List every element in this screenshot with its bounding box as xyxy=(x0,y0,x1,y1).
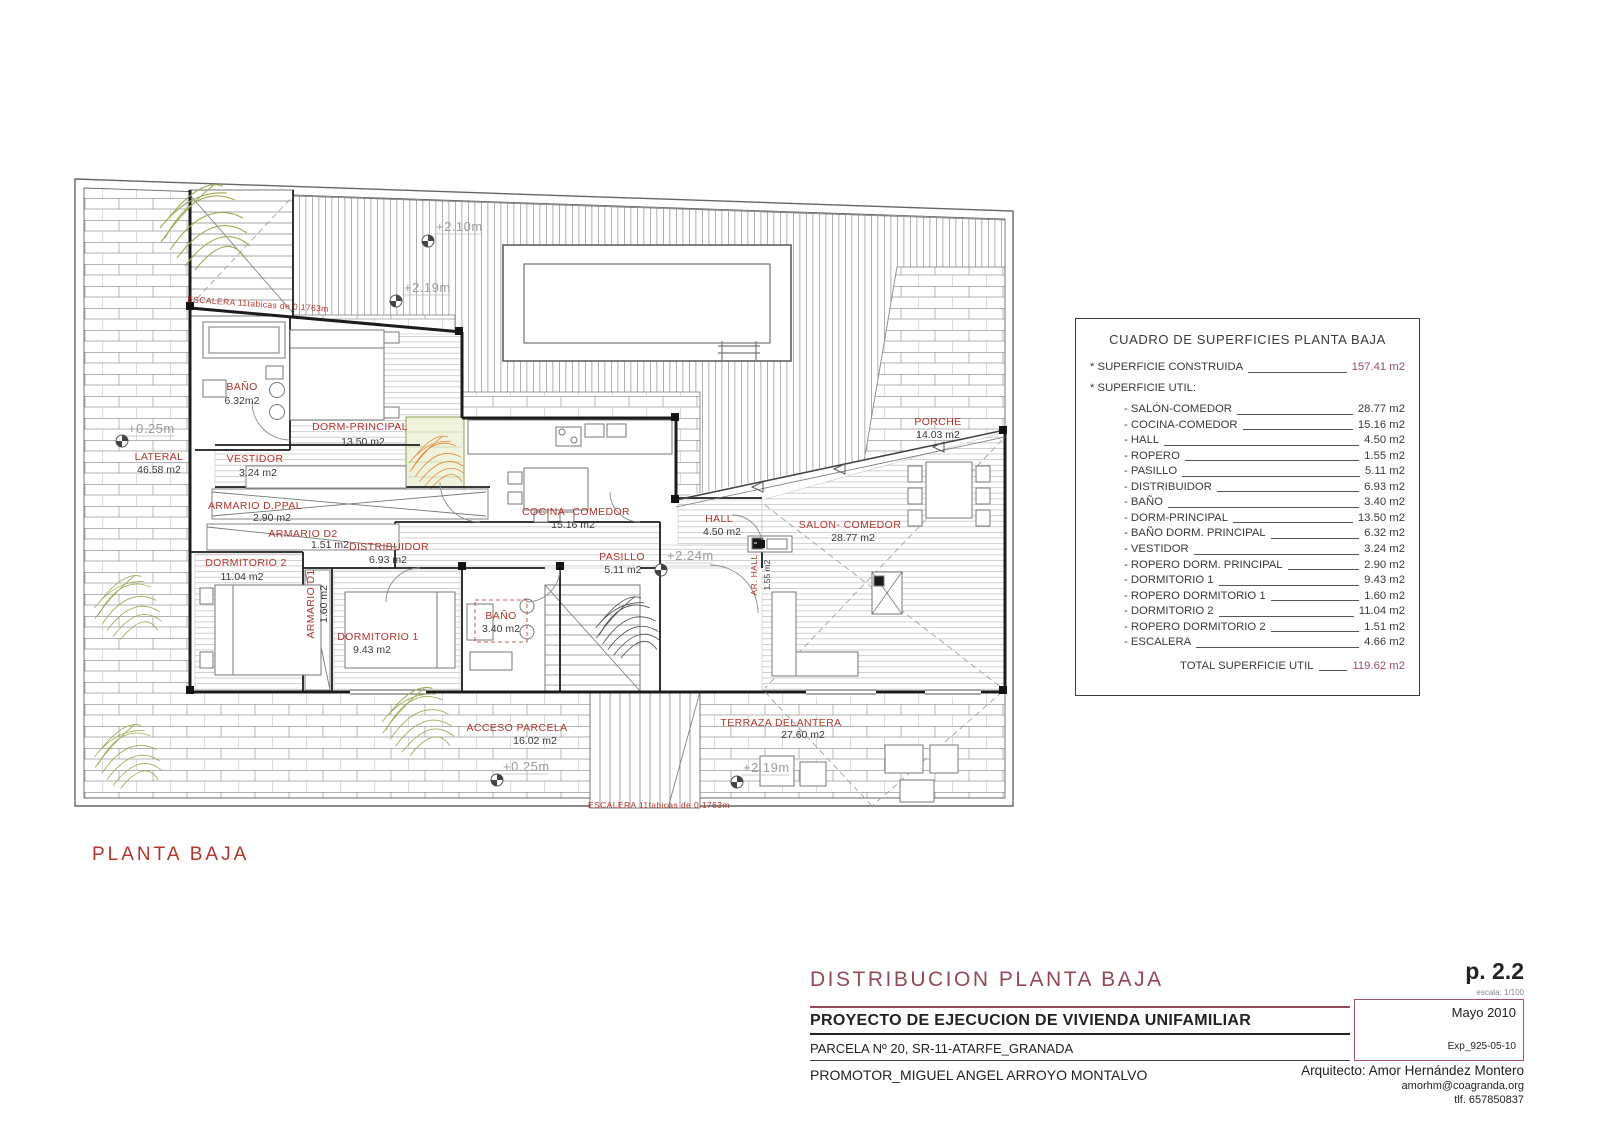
pool xyxy=(503,245,791,361)
row-label: * SUPERFICIE CONSTRUIDA xyxy=(1090,360,1243,376)
stairs-bottom xyxy=(590,692,700,808)
level-label: +2.10m xyxy=(436,219,483,234)
parcel-line: PARCELA Nº 20, SR-11-ATARFE_GRANADA xyxy=(810,1041,1073,1056)
room-area-acceso: 16.02 m2 xyxy=(513,735,557,747)
surface-table-title: CUADRO DE SUPERFICIES PLANTA BAJA xyxy=(1090,332,1405,347)
row-value: 11.04 m2 xyxy=(1359,604,1405,620)
row-label: TOTAL SUPERFICIE UTIL xyxy=(1180,659,1314,675)
row-label: - DISTRIBUIDOR xyxy=(1124,480,1212,496)
row-label: - HALL xyxy=(1124,433,1159,449)
table-row: - ROPERO1.55 m2 xyxy=(1090,449,1405,465)
scale-note: escala: 1/100 xyxy=(1360,988,1524,997)
level-label: +0.25m xyxy=(503,759,550,774)
row-value: 28.77 m2 xyxy=(1358,402,1405,418)
room-label-salon: SALON- COMEDOR xyxy=(799,519,901,531)
room-label-armario-d1: ARMARIO D1 xyxy=(305,569,317,638)
table-row: - DORMITORIO 19.43 m2 xyxy=(1090,573,1405,589)
row-value: 1.55 m2 xyxy=(1364,449,1405,465)
row-value: 6.93 m2 xyxy=(1364,480,1405,496)
row-label: - ROPERO DORMITORIO 2 xyxy=(1124,620,1266,636)
room-area-vestidor: 3.24 m2 xyxy=(239,467,277,479)
room-area-dormitorio-1: 9.43 m2 xyxy=(353,644,391,656)
leader-line xyxy=(1182,475,1360,477)
room-label-ar-hall: AR. HALL xyxy=(749,555,759,596)
plan-caption: PLANTA BAJA xyxy=(92,844,249,865)
table-row: - ROPERO DORMITORIO 11.60 m2 xyxy=(1090,589,1405,605)
room-label-distribuidor: DISTRIBUIDOR xyxy=(349,541,429,553)
table-row: - PASILLO5.11 m2 xyxy=(1090,464,1405,480)
leader-line xyxy=(1288,568,1360,570)
room-area-porche: 14.03 m2 xyxy=(916,429,960,441)
table-row: - BAÑO3.40 m2 xyxy=(1090,495,1405,511)
row-label: * SUPERFICIE UTIL: xyxy=(1090,381,1196,397)
row-value: 119.62 m2 xyxy=(1352,659,1405,675)
leader-line xyxy=(1233,521,1353,523)
date-label: Mayo 2010 xyxy=(1360,1005,1516,1020)
row-label: - ROPERO xyxy=(1124,449,1180,465)
row-value: 5.11 m2 xyxy=(1365,464,1405,480)
row-value: 1.51 m2 xyxy=(1364,620,1405,636)
row-label: - ROPERO DORM. PRINCIPAL xyxy=(1124,558,1283,574)
level-symbol-icon xyxy=(390,295,402,307)
leader-line xyxy=(1243,428,1353,430)
room-area-armario-dppal: 2.90 m2 xyxy=(253,512,291,524)
table-row: - COCINA-COMEDOR15.16 m2 xyxy=(1090,418,1405,434)
row-value: 13.50 m2 xyxy=(1358,511,1405,527)
room-area-ar-hall: 1.55 m2 xyxy=(762,559,772,590)
room-label-dormitorio-2: DORMITORIO 2 xyxy=(205,557,287,569)
leader-line xyxy=(1271,537,1360,539)
room-label-dorm-principal: DORM-PRINCIPAL xyxy=(312,421,408,433)
room-area-hall: 4.50 m2 xyxy=(703,526,741,538)
room-label-porche: PORCHE xyxy=(914,416,961,428)
room-area-terraza: 27.60 m2 xyxy=(781,729,825,741)
level-symbol-icon xyxy=(731,776,743,788)
leader-line xyxy=(1248,371,1346,373)
room-area-cocina: 15.16 m2 xyxy=(551,519,595,531)
level-label: +2.24m xyxy=(667,548,714,563)
row-value: 9.43 m2 xyxy=(1364,573,1405,589)
table-row-construida: * SUPERFICIE CONSTRUIDA 157.41 m2 xyxy=(1090,360,1405,376)
leader-line xyxy=(1271,599,1360,601)
room-area-dorm-principal: 13.50 m2 xyxy=(341,436,385,448)
room-area-distribuidor: 6.93 m2 xyxy=(369,554,407,566)
room-label-lateral: LATERAL xyxy=(135,451,184,463)
leader-line xyxy=(1164,444,1359,446)
parcel-rule xyxy=(810,1060,1350,1061)
leader-line xyxy=(1271,630,1360,632)
level-symbol-icon xyxy=(116,435,128,447)
page-number: p. 2.2 xyxy=(1360,958,1524,985)
level-label: +2.19m xyxy=(404,280,451,295)
room-label-bano-ppal: BAÑO xyxy=(226,380,257,393)
room-label-hall: HALL xyxy=(705,513,733,525)
stairs-note-bottom: ESCALERA 11tabicas de 0.1763m xyxy=(588,800,730,810)
row-value: 157.41 m2 xyxy=(1352,360,1405,376)
table-row: - SALÓN-COMEDOR28.77 m2 xyxy=(1090,402,1405,418)
surface-table: CUADRO DE SUPERFICIES PLANTA BAJA * SUPE… xyxy=(1075,318,1420,696)
table-row: - DORM-PRINCIPAL13.50 m2 xyxy=(1090,511,1405,527)
project-rule xyxy=(810,1033,1350,1035)
row-label: - ESCALERA xyxy=(1124,635,1191,651)
table-row: - BAÑO DORM. PRINCIPAL6.32 m2 xyxy=(1090,526,1405,542)
row-label: - ROPERO DORMITORIO 1 xyxy=(1124,589,1266,605)
room-area-bano-2: 3.40 m2 xyxy=(482,623,520,635)
room-area-dormitorio-2: 11.04 m2 xyxy=(221,571,264,583)
table-row: - ROPERO DORMITORIO 21.51 m2 xyxy=(1090,620,1405,636)
leader-line xyxy=(1194,553,1360,555)
room-label-terraza: TERRAZA DELANTERA xyxy=(720,717,841,729)
leader-line xyxy=(1319,669,1348,671)
level-symbol-icon xyxy=(422,235,434,247)
level-symbol-icon xyxy=(655,564,667,576)
table-row: - DISTRIBUIDOR6.93 m2 xyxy=(1090,480,1405,496)
row-value: 3.24 m2 xyxy=(1364,542,1405,558)
architect-line: Arquitecto: Amor Hernández Montero xyxy=(1230,1063,1524,1078)
row-value: 15.16 m2 xyxy=(1358,418,1405,434)
room-label-acceso: ACCESO PARCELA xyxy=(466,722,567,734)
leader-line xyxy=(1237,413,1353,415)
architect-email: amorhm@coagranda.org xyxy=(1230,1080,1524,1092)
room-label-armario-dppal: ARMARIO D.PPAL xyxy=(208,500,302,512)
leader-line xyxy=(1219,584,1360,586)
leader-line xyxy=(1217,490,1359,492)
room-label-cocina: COCINA- COMEDOR xyxy=(522,506,630,518)
level-label: +0.25m xyxy=(128,421,175,436)
room-area-salon: 28.77 m2 xyxy=(831,532,875,544)
level-label: +2.19m xyxy=(743,760,790,775)
sheet-title: DISTRIBUCION PLANTA BAJA xyxy=(810,968,1164,992)
architect-phone: tlf. 657850837 xyxy=(1230,1094,1524,1106)
row-label: - PASILLO xyxy=(1124,464,1177,480)
row-label: - DORMITORIO 1 xyxy=(1124,573,1214,589)
table-row: - HALL4.50 m2 xyxy=(1090,433,1405,449)
table-row: - ESCALERA4.66 m2 xyxy=(1090,635,1405,651)
row-label: - DORMITORIO 2 xyxy=(1124,604,1214,620)
table-row: - DORMITORIO 211.04 m2 xyxy=(1090,604,1405,620)
row-value: 2.90 m2 xyxy=(1364,558,1405,574)
leader-line xyxy=(1185,459,1359,461)
room-area-bano-ppal: 6.32m2 xyxy=(224,395,259,407)
table-row-total: TOTAL SUPERFICIE UTIL 119.62 m2 xyxy=(1090,659,1405,675)
row-value: 3.40 m2 xyxy=(1364,495,1405,511)
leader-line xyxy=(1219,615,1354,617)
room-area-armario-d2: 1.51 m2 xyxy=(311,539,349,551)
row-label: - DORM-PRINCIPAL xyxy=(1124,511,1228,527)
table-row: - ROPERO DORM. PRINCIPAL2.90 m2 xyxy=(1090,558,1405,574)
row-value: 4.66 m2 xyxy=(1364,635,1405,651)
row-label: - BAÑO DORM. PRINCIPAL xyxy=(1124,526,1266,542)
level-symbol-icon xyxy=(491,774,503,786)
drawing-sheet: +2.10m +2.19m +0.25m +2.24m +0.25m +2.19… xyxy=(0,0,1600,1131)
room-area-lateral: 46.58 m2 xyxy=(137,464,181,476)
room-label-bano-2: BAÑO xyxy=(485,609,516,622)
expedient-number: Exp_925-05-10 xyxy=(1360,1041,1516,1052)
row-value: 1.60 m2 xyxy=(1364,589,1405,605)
room-label-pasillo: PASILLO xyxy=(599,551,645,563)
row-label: - BAÑO xyxy=(1124,495,1163,511)
row-label: - COCINA-COMEDOR xyxy=(1124,418,1238,434)
room-label-dormitorio-1: DORMITORIO 1 xyxy=(337,631,419,643)
table-row: - VESTIDOR3.24 m2 xyxy=(1090,542,1405,558)
room-area-armario-d1: 1.60 m2 xyxy=(318,585,330,623)
title-rule xyxy=(810,1006,1350,1008)
table-row-util-header: * SUPERFICIE UTIL: xyxy=(1090,381,1405,397)
row-value: 4.50 m2 xyxy=(1364,433,1405,449)
promoter-line: PROMOTOR_MIGUEL ANGEL ARROYO MONTALVO xyxy=(810,1067,1147,1083)
project-title: PROYECTO DE EJECUCION DE VIVIENDA UNIFAM… xyxy=(810,1012,1251,1030)
row-label: - SALÓN-COMEDOR xyxy=(1124,402,1232,418)
leader-line xyxy=(1168,506,1359,508)
row-label: - VESTIDOR xyxy=(1124,542,1189,558)
room-label-vestidor: VESTIDOR xyxy=(227,453,284,465)
room-area-pasillo: 5.11 m2 xyxy=(604,564,641,576)
row-value: 6.32 m2 xyxy=(1364,526,1405,542)
leader-line xyxy=(1196,646,1359,648)
